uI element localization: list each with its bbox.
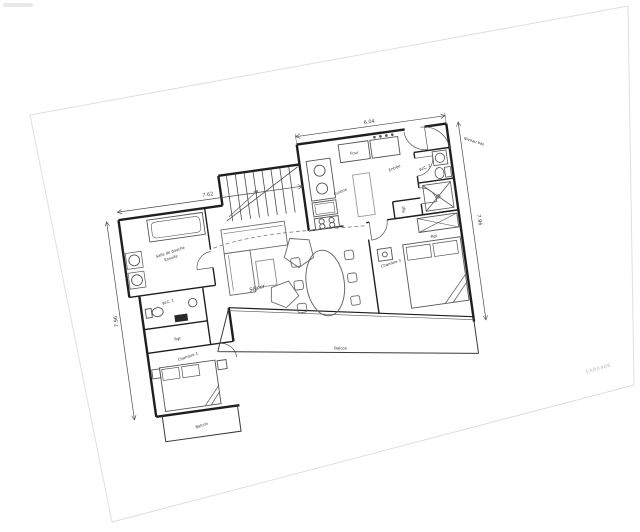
bed-chambre3 [403, 237, 469, 308]
door-swings [182, 124, 475, 361]
label-chambre1: Chambre 1 [177, 351, 199, 362]
room-labels: Cuisine Entrée Four W.C. 2 Rgt Séjour Ch… [144, 140, 463, 432]
scanned-floorplan-page: FAR0406 [0, 0, 640, 532]
dim-left-top-label: 7.62 [202, 191, 214, 198]
sink-unit [306, 158, 335, 201]
label-cuisine: Cuisine [333, 186, 348, 196]
label-entree: Entrée [388, 163, 402, 173]
coffee-table [256, 259, 277, 287]
level-change-line [213, 221, 367, 248]
bathtub [147, 212, 206, 242]
corner-watermark [3, 3, 33, 7]
label-balcon-left: Balcon [195, 421, 209, 430]
bathroom-fixtures [121, 212, 217, 327]
dim-top-label: 6.04 [363, 119, 375, 126]
bedroom1-furniture [152, 359, 232, 413]
floorplan-svg: 6.04 7.62 7.96 7.96 Niveau bas Cuisine E… [81, 100, 511, 452]
label-four: Four [350, 150, 359, 156]
label-balcon-main: Balcon [334, 345, 347, 350]
dim-left-label: 7.96 [113, 315, 120, 327]
armchair-2 [269, 280, 300, 310]
label-rgt-chambre3: Rgt [430, 233, 438, 239]
island [353, 173, 376, 217]
label-rgt-wc: Rgt [174, 336, 182, 342]
label-wc1: W.C. 1 [162, 297, 176, 306]
label-rgt-kitchen: Rgt [400, 205, 406, 213]
dim-right-label: 7.96 [475, 214, 482, 226]
floorplan-drawing: 6.04 7.62 7.96 7.96 Niveau bas Cuisine E… [81, 100, 511, 452]
dining-table [302, 248, 349, 319]
label-chambre3: Chambre 3 [380, 257, 402, 268]
label-sejour: Séjour [248, 282, 266, 293]
kitchen-fixtures [304, 133, 409, 230]
label-wc2: W.C. 2 [418, 163, 432, 173]
